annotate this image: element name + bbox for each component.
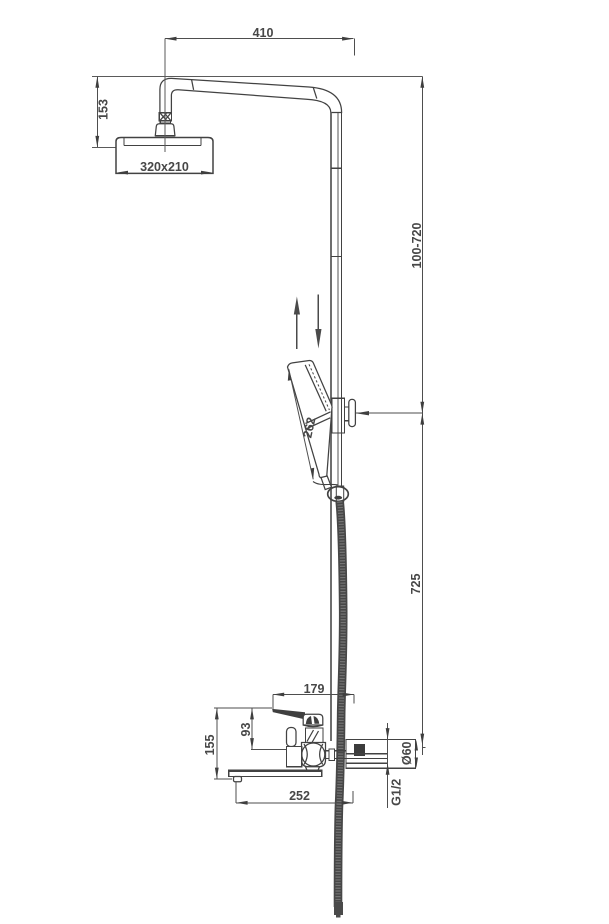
- svg-text:93: 93: [239, 723, 253, 737]
- svg-text:252: 252: [289, 789, 310, 803]
- svg-text:G1/2: G1/2: [390, 779, 404, 806]
- svg-text:179: 179: [304, 682, 325, 696]
- svg-text:153: 153: [96, 99, 110, 120]
- svg-text:100-720: 100-720: [410, 223, 424, 269]
- svg-text:Ø60: Ø60: [400, 741, 414, 765]
- svg-text:320x210: 320x210: [140, 160, 189, 174]
- svg-text:725: 725: [409, 574, 423, 595]
- svg-text:155: 155: [203, 735, 217, 756]
- svg-text:410: 410: [253, 26, 274, 40]
